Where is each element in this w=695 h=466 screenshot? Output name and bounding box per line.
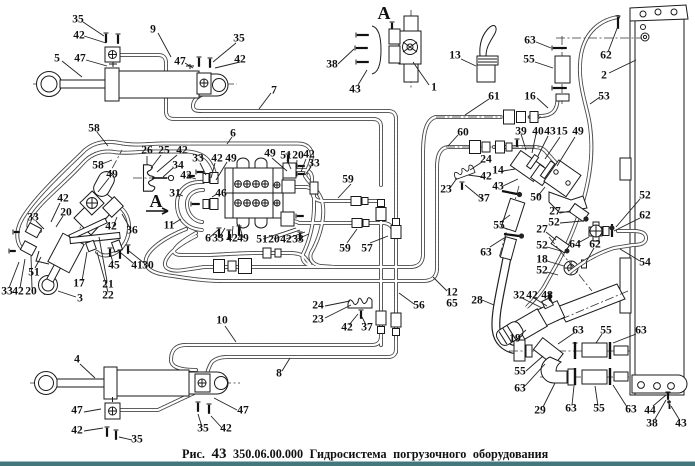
svg-text:23: 23 <box>312 314 324 326</box>
svg-text:52: 52 <box>536 265 548 277</box>
svg-text:23: 23 <box>440 184 452 196</box>
svg-text:20: 20 <box>268 234 280 246</box>
svg-text:20: 20 <box>292 150 304 162</box>
svg-text:43: 43 <box>349 84 361 96</box>
svg-text:52: 52 <box>548 217 560 229</box>
svg-text:19: 19 <box>509 333 521 345</box>
svg-text:33: 33 <box>1 286 13 298</box>
svg-text:56: 56 <box>413 300 425 312</box>
svg-text:1: 1 <box>431 82 437 94</box>
svg-text:51: 51 <box>28 267 40 279</box>
svg-text:61: 61 <box>488 91 500 103</box>
svg-text:А: А <box>150 191 163 211</box>
svg-text:63: 63 <box>635 325 647 337</box>
svg-text:31: 31 <box>169 188 181 200</box>
svg-text:43: 43 <box>544 126 556 138</box>
svg-text:59: 59 <box>342 174 354 186</box>
svg-text:8: 8 <box>276 368 282 380</box>
svg-text:63: 63 <box>514 383 526 395</box>
svg-text:55: 55 <box>514 366 526 378</box>
svg-text:42: 42 <box>12 286 24 298</box>
svg-text:28: 28 <box>471 295 483 307</box>
svg-text:27: 27 <box>536 224 548 236</box>
svg-text:54: 54 <box>639 257 651 269</box>
svg-text:24: 24 <box>480 154 492 166</box>
svg-text:35: 35 <box>197 423 209 435</box>
svg-text:62: 62 <box>589 239 601 251</box>
svg-text:52: 52 <box>639 190 651 202</box>
svg-text:42: 42 <box>280 234 292 246</box>
svg-text:38: 38 <box>646 418 658 430</box>
svg-text:49: 49 <box>225 153 237 165</box>
svg-text:35: 35 <box>233 33 245 45</box>
svg-text:43: 43 <box>675 418 687 430</box>
svg-text:49: 49 <box>237 233 249 245</box>
svg-text:15: 15 <box>556 126 568 138</box>
svg-text:9: 9 <box>150 24 156 36</box>
svg-text:20: 20 <box>25 286 37 298</box>
svg-text:5: 5 <box>54 53 60 65</box>
svg-text:29: 29 <box>534 405 546 417</box>
svg-text:16: 16 <box>524 91 536 103</box>
svg-text:55: 55 <box>593 403 605 415</box>
svg-text:42: 42 <box>105 221 117 233</box>
svg-text:62: 62 <box>600 50 612 62</box>
svg-text:63: 63 <box>572 325 584 337</box>
svg-text:50: 50 <box>530 192 542 204</box>
svg-text:63: 63 <box>480 247 492 259</box>
svg-text:53: 53 <box>598 91 610 103</box>
svg-text:42: 42 <box>180 170 192 182</box>
svg-text:47: 47 <box>174 56 186 68</box>
svg-text:42: 42 <box>57 193 69 205</box>
svg-text:42: 42 <box>176 145 188 157</box>
svg-text:63: 63 <box>565 403 577 415</box>
svg-text:55: 55 <box>523 54 535 66</box>
svg-text:47: 47 <box>74 53 86 65</box>
svg-text:45: 45 <box>108 260 120 272</box>
svg-text:48: 48 <box>541 290 553 302</box>
svg-text:41: 41 <box>131 260 143 272</box>
svg-text:57: 57 <box>361 243 373 255</box>
svg-text:51: 51 <box>256 234 268 246</box>
svg-text:42: 42 <box>234 54 246 66</box>
svg-text:65: 65 <box>446 298 458 310</box>
svg-text:33: 33 <box>27 212 39 224</box>
svg-text:42: 42 <box>73 30 85 42</box>
svg-text:6: 6 <box>230 128 236 140</box>
svg-text:42: 42 <box>480 171 492 183</box>
svg-text:10: 10 <box>216 315 228 327</box>
svg-text:58: 58 <box>92 160 104 172</box>
svg-text:37: 37 <box>478 193 490 205</box>
svg-text:6: 6 <box>205 233 211 245</box>
svg-text:35: 35 <box>131 434 143 446</box>
svg-text:49: 49 <box>572 126 584 138</box>
svg-text:33: 33 <box>212 233 224 245</box>
svg-text:58: 58 <box>88 123 100 135</box>
svg-text:24: 24 <box>312 300 324 312</box>
svg-text:60: 60 <box>457 127 469 139</box>
svg-text:42: 42 <box>526 290 538 302</box>
svg-text:62: 62 <box>639 210 651 222</box>
svg-text:32: 32 <box>513 290 525 302</box>
svg-text:47: 47 <box>237 405 249 417</box>
svg-text:Рис. 43 350.06.00.000 Гидрос: Рис. 43 350.06.00.000 Гидросистема погру… <box>182 446 549 462</box>
svg-text:30: 30 <box>142 260 154 272</box>
svg-text:64: 64 <box>569 239 581 251</box>
svg-text:13: 13 <box>449 50 461 62</box>
svg-text:55: 55 <box>600 325 612 337</box>
svg-text:33: 33 <box>292 234 304 246</box>
svg-text:55: 55 <box>493 220 505 232</box>
svg-text:36: 36 <box>126 225 138 237</box>
svg-text:35: 35 <box>72 14 84 26</box>
svg-text:11: 11 <box>164 220 175 232</box>
svg-text:А: А <box>378 3 391 23</box>
svg-text:4: 4 <box>74 354 80 366</box>
svg-text:17: 17 <box>73 278 85 290</box>
svg-text:39: 39 <box>515 126 527 138</box>
svg-text:42: 42 <box>211 153 223 165</box>
svg-text:46: 46 <box>215 188 227 200</box>
svg-text:26: 26 <box>141 145 153 157</box>
svg-text:63: 63 <box>524 35 536 47</box>
svg-text:22: 22 <box>102 290 114 302</box>
svg-text:7: 7 <box>271 85 277 97</box>
svg-text:42: 42 <box>71 425 83 437</box>
svg-text:42: 42 <box>226 233 238 245</box>
svg-text:42: 42 <box>341 322 353 334</box>
svg-text:42: 42 <box>220 423 232 435</box>
svg-text:51: 51 <box>280 150 292 162</box>
svg-text:33: 33 <box>192 153 204 165</box>
svg-text:44: 44 <box>644 405 656 417</box>
svg-text:40: 40 <box>532 126 544 138</box>
svg-text:47: 47 <box>71 405 83 417</box>
svg-text:49: 49 <box>106 169 118 181</box>
svg-text:33: 33 <box>308 158 320 170</box>
svg-text:49: 49 <box>264 148 276 160</box>
svg-text:52: 52 <box>536 240 548 252</box>
svg-text:59: 59 <box>339 243 351 255</box>
svg-text:3: 3 <box>77 293 83 305</box>
svg-text:37: 37 <box>361 322 373 334</box>
svg-text:20: 20 <box>60 207 72 219</box>
svg-text:2: 2 <box>601 70 607 82</box>
svg-text:38: 38 <box>326 59 338 71</box>
svg-text:14: 14 <box>492 165 504 177</box>
svg-text:25: 25 <box>158 145 170 157</box>
svg-text:63: 63 <box>625 404 637 416</box>
svg-text:43: 43 <box>492 181 504 193</box>
